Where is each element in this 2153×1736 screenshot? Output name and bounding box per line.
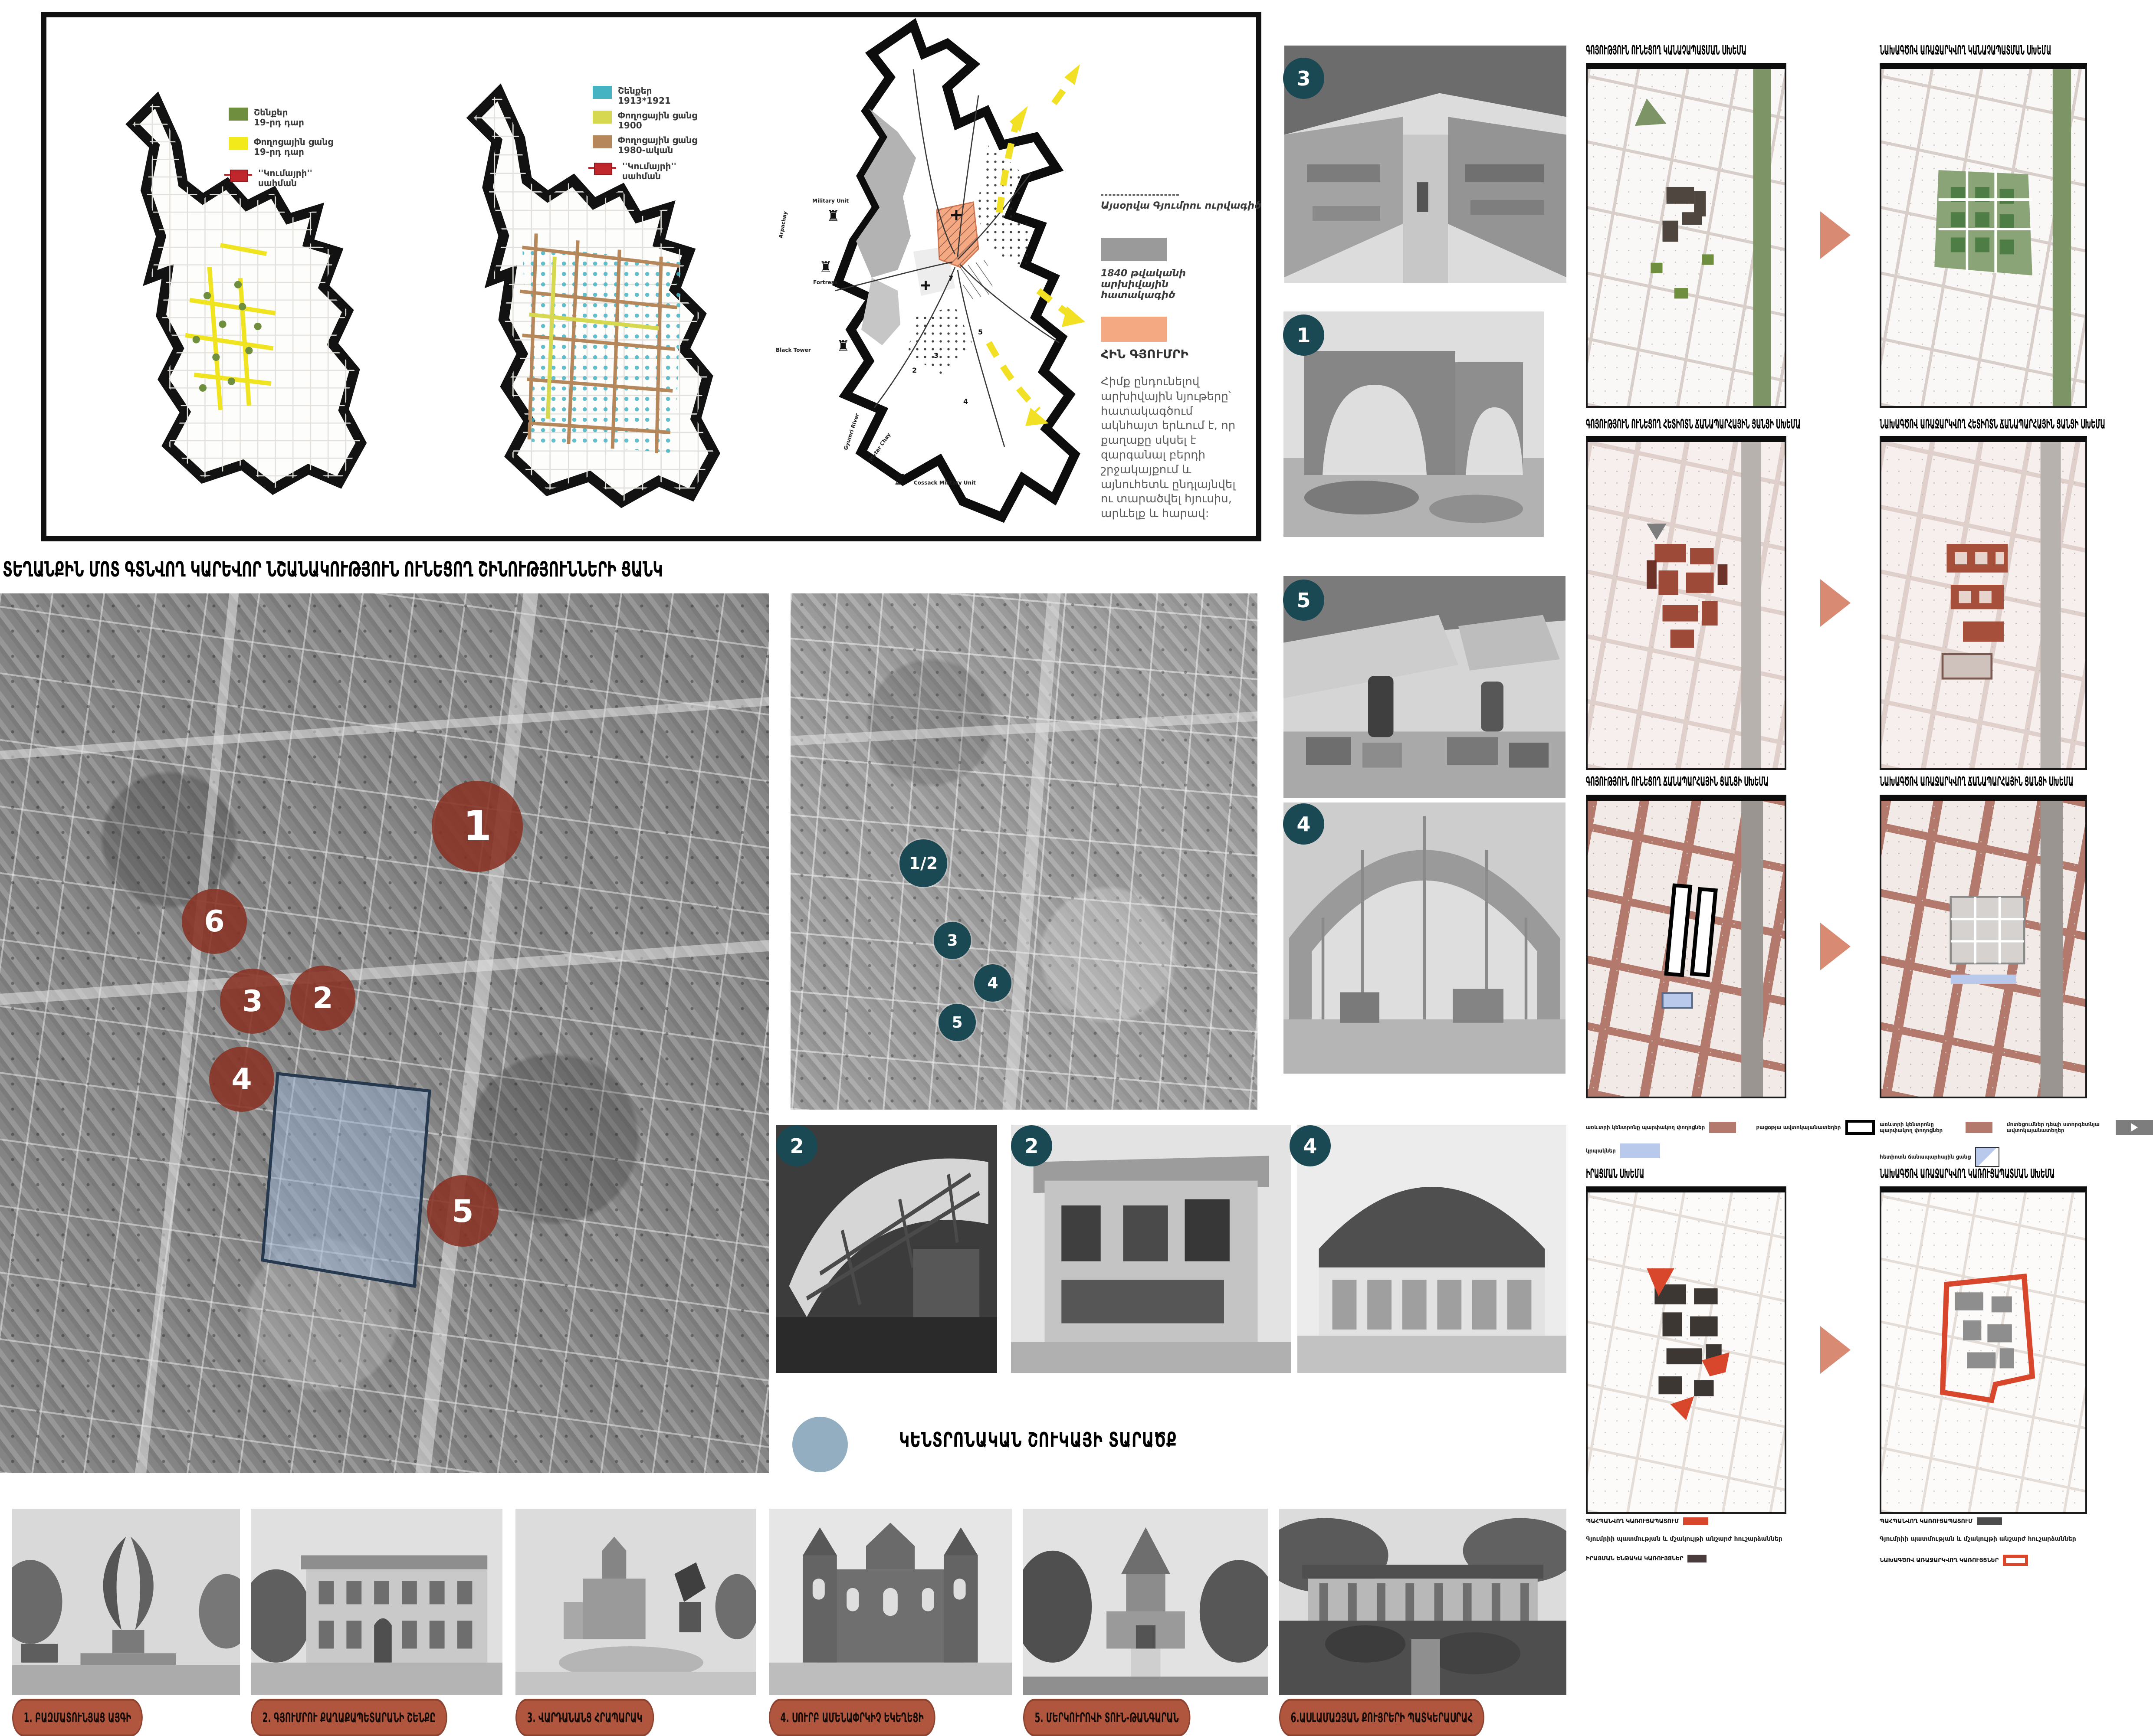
marker-number: 5 <box>452 1193 473 1229</box>
legend-label: կրպակներ <box>1586 1148 1616 1154</box>
legend-label: առևտրի կենտրոնը պարփակող փողոցներ <box>1586 1124 1705 1130</box>
photo-badge: 3 <box>1283 58 1324 99</box>
site-satellite-map <box>0 593 769 1473</box>
badge-number: 3 <box>1296 67 1310 90</box>
site-marker: 5 <box>427 1175 499 1247</box>
history-paragraph: Հիմք ընդունելով արխիվային նյութերը՝ հատա… <box>1101 375 1244 521</box>
marker-number: 2 <box>312 981 333 1015</box>
detail-marker: 5 <box>939 1004 976 1041</box>
legend-label: բացօթյա ավտոկայանատեղեր <box>1756 1124 1841 1130</box>
badge-number: 5 <box>1296 589 1310 612</box>
side-road <box>134 593 240 1473</box>
photo-vardanants-square <box>515 1509 756 1695</box>
legend4-right-proposed: ՆԱԽԱԳԾՈՎ ԱՌԱՋԱՐԿՎՈՂ ԿԱՌՈՒՅՑՆԵՐ <box>1880 1555 2028 1566</box>
legend-label: 1913*1921 <box>618 96 671 106</box>
detail-marker: 1/2 <box>899 839 947 887</box>
scheme-title: ՆԱԽԱԳԾՈՎ ԱՌԱՋԱՐԿՎՈՂ ԿԱՆԱՉԱՊԱՏՄԱՆ ՍԽԵՄԱ <box>1880 43 2051 58</box>
caption-pill: 3. ՎԱՐԴԱՆԱՆՑ ՀՐԱՊԱՐԱԿ <box>515 1699 654 1736</box>
scheme-map-implementation <box>1586 1186 1786 1514</box>
scheme-map-roads-existing <box>1586 795 1786 1098</box>
legend-label: Շենքեր <box>254 108 304 118</box>
caption-pill: 4. ՍՈՒՐԲ ԱՄԵՆԱՓՐԿԻՉ ԵԿԵՂԵՑԻ <box>769 1699 935 1736</box>
legend3-left-line2: կրպակներ <box>1586 1143 1660 1158</box>
yellow-swatch <box>229 137 248 150</box>
legend-label: սահման <box>258 178 312 188</box>
site-marker: 1 <box>432 781 523 872</box>
scheme-title: ԳՈՅՈՒԹՅՈՒՆ ՈՒՆԵՑՈՂ ԿԱՆԱՉԱՊԱՏՄԱՆ ՍԽԵՄԱ <box>1586 43 1746 58</box>
photo-open-market <box>1283 576 1566 798</box>
badge-number: 4 <box>1296 812 1310 836</box>
legend4-left-demolish: ԻՐԱՑՄԱՆ ԵՆԹԱԿԱ ԿԱՌՈՒՅՑՆԵՐ <box>1586 1555 1707 1562</box>
photo-ruin-concrete <box>1011 1125 1291 1373</box>
label-cossack: Cossack Military Unit <box>914 480 976 486</box>
legend3-right-line2: հետիոտն ճանապարհային ցանց <box>1880 1147 1999 1167</box>
scheme-title: ՆԱԽԱԳԾՈՎ ԱՌԱՋԱՐԿՎՈՂ ԿԱՌՈՒՑԱՊԱՏՄԱՆ ՍԽԵՄԱ <box>1880 1167 2055 1182</box>
badge-number: 4 <box>1303 1134 1317 1158</box>
scheme-map-pedestrian-proposed <box>1880 436 2087 770</box>
scheme-title: ՆԱԽԱԳԾՈՎ ԱՌԱՋԱՐԿՎՈՂ ՀԵՏԻՈՏՆ ՃԱՆԱՊԱՐՀԱՅԻՆ… <box>1880 417 2105 432</box>
site-marker: 2 <box>290 966 355 1031</box>
red-outline-swatch <box>2003 1555 2028 1566</box>
legend-label: Շենքեր <box>618 86 671 96</box>
kiosk-blue-swatch <box>1620 1143 1660 1158</box>
marker-number: 5 <box>952 1014 962 1032</box>
parking-outline-swatch <box>1845 1120 1875 1135</box>
transition-arrow <box>1820 923 1851 970</box>
marker-number: 1 <box>463 802 492 850</box>
cross-road <box>0 938 769 1006</box>
legend-label: Փողոցային ցանց <box>254 137 333 147</box>
brown-swatch <box>593 135 612 148</box>
legend-label: ''Կումայրի'' <box>258 168 312 178</box>
fortress-icon: ♜ <box>893 471 906 488</box>
marker-number: 6 <box>204 904 224 939</box>
photo-hangar-interior <box>1283 802 1566 1074</box>
legend4-left-monuments: Գյումրիի պատմության և մշակույթի անշարժ հ… <box>1586 1536 1864 1543</box>
photo-sculpture-park <box>12 1509 240 1695</box>
legend-a-item-streets: Փողոցային ցանց19-րդ դար <box>229 137 333 157</box>
zone-number: 3 <box>934 351 939 360</box>
transition-arrow <box>1820 1326 1851 1374</box>
photo-market-aisle <box>1284 46 1566 283</box>
fortress-icon: ♜ <box>819 259 832 276</box>
dark-gray-swatch <box>1977 1517 2002 1525</box>
legend4-left-preserved: ՊԱՀՊԱՆՎՈՂ ԿԱՌՈՒՑԱՊԱՏՈՒՄ <box>1586 1517 1708 1525</box>
caption-pill: 5. ՄԵՐԿՈՒՐՈՎԻ ՏՈՒՆ-ԹԱՆԳԱՐԱՆ <box>1023 1699 1190 1736</box>
legend-label: ''Կումայրի'' <box>622 161 676 171</box>
page-title: ՏԵՂԱՆՔԻՆ ՄՈՏ ԳՏՆՎՈՂ ԿԱՐԵՎՈՐ ՆՇԱՆԱԿՈՒԹՅՈՒ… <box>3 557 663 582</box>
photo-badge: 4 <box>1283 803 1324 845</box>
transition-arrow <box>1820 579 1851 627</box>
cross-road <box>791 711 1257 747</box>
detail-marker: 3 <box>934 922 971 959</box>
photo-badge: 4 <box>1290 1125 1331 1166</box>
fortress-icon: ♜ <box>837 337 850 355</box>
red-swatch <box>1683 1517 1708 1525</box>
caption-pill: 2. ԳՅՈՒՄՐՈՒ ՔԱՂԱՔԱՊԵՏԱՐԱՆԻ ՇԵՆՔԸ <box>251 1699 447 1736</box>
teal-swatch <box>593 86 612 99</box>
zone-number: 2 <box>912 366 917 374</box>
legend-b-item-buildings: Շենքեր1913*1921 <box>593 86 671 106</box>
photo-badge: 1 <box>1283 314 1324 356</box>
photo-merkurov-museum <box>1023 1509 1268 1695</box>
photo-city-hall <box>251 1509 502 1695</box>
today-outline-dash <box>1101 194 1179 196</box>
terracotta-swatch <box>1709 1122 1736 1133</box>
map-analysis <box>718 17 1109 529</box>
legend-b-item-streets-1900: Փողոցային ցանց1900 <box>593 111 697 131</box>
photo-arch-ruins <box>1283 311 1544 537</box>
old-gyumri-swatch <box>1101 317 1167 342</box>
marker-number: 1/2 <box>909 854 938 873</box>
legend-b-item-streets-1980: Փողոցային ցանց1980-ական <box>593 135 697 155</box>
note-outline-label: Այսօրվա Գյումրու ուրվագիծ <box>1101 200 1261 211</box>
legend4-right-monuments: Գյումրիի պատմության և մշակույթի անշարժ հ… <box>1880 1536 2153 1543</box>
market-block-outline <box>256 1050 460 1301</box>
old-gyumri-label: ՀԻՆ ԳՅՈՒՄՐԻ <box>1101 347 1188 361</box>
marker-number: 3 <box>242 984 263 1019</box>
legend4-right-preserved: ՊԱՀՊԱՆՎՈՂ ԿԱՌՈՒՑԱՊԱՏՈՒՄ <box>1880 1517 2002 1525</box>
scheme-map-roads-proposed <box>1880 795 2087 1098</box>
legend-label: Փողոցային ցանց <box>618 135 697 145</box>
legend-label: մոտեցումներ դեպի ստորգետնյա ավտոկայանատե… <box>2007 1121 2111 1133</box>
scheme-map-green-existing <box>1586 63 1786 408</box>
map-1840-outline <box>56 80 385 518</box>
terracotta-swatch <box>1966 1122 1992 1133</box>
site-marker: 6 <box>182 889 247 954</box>
caption-pill: 6.ԱՍԼԱՄԱԶՅԱՆ ՔՈՒՅՐԵՐԻ ՊԱՏԿԵՐԱՍՐԱՀ <box>1279 1699 1484 1736</box>
site-marker: 3 <box>220 969 285 1034</box>
zone-number: 4 <box>963 397 968 406</box>
legend-b-item-boundary: ''Կումայրի''սահման <box>588 161 676 181</box>
legend-label: ՊԱՀՊԱՆՎՈՂ ԿԱՌՈՒՑԱՊԱՏՈՒՄ <box>1586 1518 1679 1525</box>
main-road <box>1001 593 1062 1110</box>
scheme-map-development-proposed <box>1880 1186 2087 1514</box>
label-black-tower: Black Tower <box>776 347 811 353</box>
legend-a-item-buildings: Շենքեր19-րդ դար <box>229 108 304 128</box>
cross-road <box>0 695 769 760</box>
marker-number: 4 <box>231 1062 252 1097</box>
zone-number: 5 <box>978 328 983 336</box>
site-marker: 4 <box>209 1047 274 1112</box>
scheme-title: ԳՈՅՈՒԹՅՈՒՆ ՈՒՆԵՑՈՂ ՃԱՆԱՊԱՐՀԱՅԻՆ ՑԱՆՑԻ ՍԽ… <box>1586 775 1769 789</box>
scheme-map-pedestrian-existing <box>1586 436 1786 770</box>
legend3-right-line1: առևտրի կենտրոնը պարփակող փողոցներ մոտեցո… <box>1880 1120 2153 1135</box>
archive-gray-swatch <box>1101 238 1167 261</box>
market-detail-map <box>791 593 1257 1110</box>
marker-number: 3 <box>947 932 958 950</box>
poster-board: Շենքեր19-րդ դար Փողոցային ցանց19-րդ դար … <box>0 0 2153 1736</box>
market-area-circle <box>792 1417 848 1472</box>
photo-badge: 5 <box>1283 580 1324 621</box>
boundary-symbol <box>588 161 616 174</box>
scheme-title: ՆԱԽԱԳԾՈՎ ԱՌԱՋԱՐԿՎՈՂ ՃԱՆԱՊԱՐՀԱՅԻՆ ՑԱՆՑԻ Ս… <box>1880 775 2073 789</box>
pedestrian-diagonal-swatch <box>1975 1147 1999 1167</box>
legend-label: հետիոտն ճանապարհային ցանց <box>1880 1154 1971 1160</box>
detail-marker: 4 <box>974 964 1011 1002</box>
legend-label: ԻՐԱՑՄԱՆ ԵՆԹԱԿԱ ԿԱՌՈՒՅՑՆԵՐ <box>1586 1556 1683 1562</box>
boundary-symbol <box>224 168 252 181</box>
note-archive-label: 1840 թվականի արխիվային հատակագիծ <box>1101 268 1244 301</box>
badge-number: 1 <box>1296 324 1310 347</box>
legend-label: Փողոցային ցանց <box>618 111 697 121</box>
scheme-title: ԳՈՅՈՒԹՅՈՒՆ ՈՒՆԵՑՈՂ ՀԵՏԻՈՏՆ ՃԱՆԱՊԱՐՀԱՅԻՆ … <box>1586 417 1800 432</box>
legend-label: 19-րդ դար <box>254 147 333 157</box>
legend-a-item-boundary: ''Կումայրի''սահման <box>224 168 312 188</box>
badge-number: 2 <box>790 1134 804 1158</box>
legend-label: սահման <box>622 171 676 181</box>
marker-number: 4 <box>987 974 998 992</box>
photo-aslamazyan-gallery <box>1279 1509 1566 1695</box>
caption-pill: 1. ԲԱԶՄԱՏՈՒՆՅԱՑ ԱՅԳԻ <box>12 1699 143 1736</box>
transition-arrow <box>1820 211 1851 259</box>
legend-label: 19-րդ դար <box>254 118 304 128</box>
zone-number: 7 <box>949 274 953 282</box>
badge-number: 2 <box>1024 1134 1038 1158</box>
underground-arrow-icon <box>2116 1120 2153 1135</box>
legend-label: ՆԱԽԱԳԾՈՎ ԱՌԱՋԱՐԿՎՈՂ ԿԱՌՈՒՅՑՆԵՐ <box>1880 1557 1999 1564</box>
green-swatch <box>229 108 248 121</box>
scheme-title: ԻՐԱՑՄԱՆ ՍԽԵՄԱ <box>1586 1167 1644 1182</box>
market-area-label: ԿԵՆՏՐՈՆԱԿԱՆ ՇՈՒԿԱՅԻ ՏԱՐԱԾՔ <box>899 1428 1177 1452</box>
legend3-left-line1: առևտրի կենտրոնը պարփակող փողոցներ բացօթյ… <box>1586 1120 1875 1135</box>
dark-brown-swatch <box>1687 1555 1707 1562</box>
label-fortress: Fortress <box>813 279 837 285</box>
photo-badge: 2 <box>776 1125 817 1166</box>
legend-label: 1900 <box>618 121 697 131</box>
photo-hangar-exterior <box>1297 1125 1566 1373</box>
yellowgreen-swatch <box>593 111 612 124</box>
legend-label: ՊԱՀՊԱՆՎՈՂ ԿԱՌՈՒՑԱՊԱՏՈՒՄ <box>1880 1518 1972 1525</box>
scheme-map-green-proposed <box>1880 63 2087 408</box>
legend-label: առևտրի կենտրոնը պարփակող փողոցներ <box>1880 1121 1961 1133</box>
label-military-unit: Military Unit <box>812 198 849 204</box>
fortress-icon: ♜ <box>827 207 840 225</box>
photo-badge: 2 <box>1011 1125 1052 1166</box>
legend-label: 1980-ական <box>618 145 697 155</box>
photo-holy-savior-church <box>769 1509 1012 1695</box>
